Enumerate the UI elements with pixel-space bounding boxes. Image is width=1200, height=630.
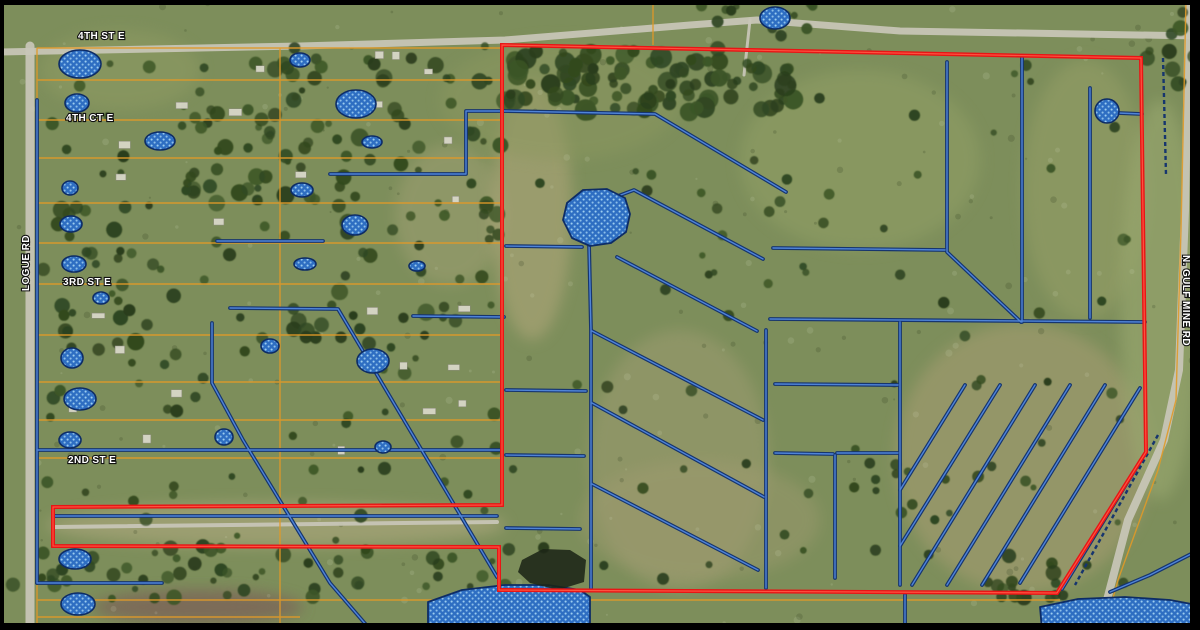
aerial-map: 4TH ST E4TH CT E3RD ST E2ND ST ELOGUE RD… (0, 0, 1200, 630)
pond-16 (342, 215, 368, 235)
pond-22 (375, 441, 391, 453)
pond-3 (62, 181, 78, 195)
pond-23 (760, 7, 790, 29)
pond-0 (59, 50, 101, 78)
pond-21 (215, 429, 233, 445)
pond-15 (291, 183, 313, 197)
pond-4 (60, 216, 82, 232)
pond-13 (336, 90, 376, 118)
road-label-n-gulf-mine-rd: N. GULF MINE RD (1180, 255, 1191, 346)
pond-10 (59, 549, 91, 569)
pond-11 (61, 593, 95, 615)
pond-19 (261, 339, 279, 353)
road-label-4th-ct-e: 4TH CT E (66, 113, 114, 124)
pond-24 (1095, 99, 1119, 123)
ground-base (0, 0, 1200, 630)
pond-7 (61, 348, 83, 368)
pond-1 (65, 94, 89, 112)
road-label-3rd-st-e: 3RD ST E (63, 277, 111, 288)
road-label-logue-rd: LOGUE RD (21, 235, 32, 291)
pond-18 (409, 261, 425, 271)
pond-8 (64, 388, 96, 410)
pond-12 (290, 53, 310, 67)
road-label-2nd-st-e: 2ND ST E (68, 455, 116, 466)
road-label-4th-st-e: 4TH ST E (78, 31, 125, 42)
pond-20 (357, 349, 389, 373)
pond-17 (294, 258, 316, 270)
pond-9 (59, 432, 81, 448)
pond-14 (362, 136, 382, 148)
pond-5 (62, 256, 86, 272)
pond-6 (93, 292, 109, 304)
pond-2 (145, 132, 175, 150)
wetland-0 (563, 189, 630, 246)
map-frame: 4TH ST E4TH CT E3RD ST E2ND ST ELOGUE RD… (0, 0, 1200, 630)
